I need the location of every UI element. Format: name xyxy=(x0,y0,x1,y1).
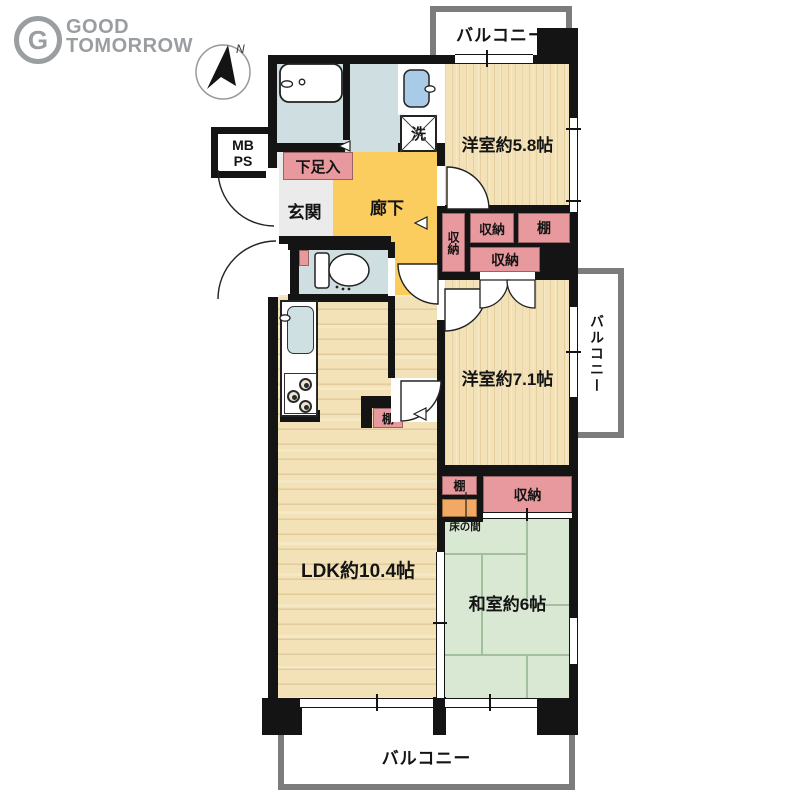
brand-logo-icon: G xyxy=(14,16,62,64)
japanese-room-label: 和室約6帖 xyxy=(443,588,572,616)
toilet-floor xyxy=(299,250,388,294)
compass-needle-icon xyxy=(207,45,236,89)
shoe-cabinet: 下足入 xyxy=(283,152,353,180)
closet-door-opening xyxy=(480,272,535,280)
door-opening xyxy=(388,258,395,296)
window-tick xyxy=(376,694,378,711)
wall xyxy=(535,272,578,280)
western-room-58-label: 洋室約5.8帖 xyxy=(445,128,570,158)
tatami-line xyxy=(443,553,527,555)
closet-58-lower: 収納 xyxy=(470,247,540,272)
wall xyxy=(211,127,268,134)
window-tick xyxy=(433,622,447,624)
wall xyxy=(268,55,277,168)
western-room-71-label: 洋室約7.1帖 xyxy=(445,362,570,392)
meter-pipe-space-label: MB PS xyxy=(218,134,268,171)
window-tick xyxy=(489,694,491,711)
laundry-label: 洗 xyxy=(400,115,437,152)
toilet-shelf xyxy=(299,250,309,266)
balcony-right: バルコニー xyxy=(578,268,624,438)
compass-circle xyxy=(196,45,250,99)
stove-burner-icon xyxy=(299,400,312,413)
tokonoma-label: 床の間 xyxy=(438,519,492,533)
window xyxy=(455,54,533,64)
balcony-bottom-label: バルコニー xyxy=(284,739,569,773)
shelf-58: 棚 xyxy=(518,213,570,243)
tokonoma-box xyxy=(442,499,477,517)
balcony-bottom: バルコニー xyxy=(278,735,575,790)
wall xyxy=(437,320,445,420)
floorplan-canvas: G GOOD TOMORROW N バルコニー バルコニー バルコニー xyxy=(0,0,800,800)
wall xyxy=(540,247,578,272)
shelf-washitsu: 棚 xyxy=(442,476,477,495)
compass: N xyxy=(190,36,260,106)
wall xyxy=(343,60,350,140)
wall xyxy=(437,272,480,280)
compass-north-label: N xyxy=(236,42,245,56)
wall xyxy=(268,55,455,64)
brand-logo-letter: G xyxy=(28,25,48,56)
hallway-label: 廊下 xyxy=(337,192,437,220)
wall xyxy=(437,143,445,166)
tatami-line xyxy=(526,655,528,700)
wall xyxy=(388,296,395,378)
wall xyxy=(262,698,302,735)
closet-58-left: 収納 xyxy=(470,213,514,243)
wall xyxy=(388,250,395,258)
wall xyxy=(268,297,278,703)
window-tick xyxy=(526,508,528,521)
wall xyxy=(437,205,578,213)
window-tick xyxy=(486,50,488,67)
door-opening xyxy=(391,378,437,422)
stove-burner-icon xyxy=(287,390,300,403)
door-opening xyxy=(437,166,445,206)
window xyxy=(300,698,433,708)
wall xyxy=(211,171,268,178)
window xyxy=(569,118,578,212)
entrance-door-opening xyxy=(266,168,279,297)
sliding-partition xyxy=(436,552,445,698)
wall xyxy=(290,250,299,295)
door-opening xyxy=(437,280,445,320)
washstand-area xyxy=(398,60,437,115)
kitchen-sink xyxy=(287,306,314,354)
brand-line2: TOMORROW xyxy=(66,37,193,56)
window-tick xyxy=(566,200,581,202)
window xyxy=(569,618,578,664)
balcony-right-label: バルコニー xyxy=(584,284,610,424)
window xyxy=(445,698,537,708)
pipe-space-label: PS xyxy=(234,153,253,169)
entrance-label: 玄関 xyxy=(276,196,333,224)
wall xyxy=(437,465,578,476)
meter-box-label: MB xyxy=(232,137,254,153)
brand-wordmark: GOOD TOMORROW xyxy=(66,18,193,56)
ldk-label: LDK約10.4帖 xyxy=(279,554,437,584)
window-tick xyxy=(566,351,581,353)
closet-hall-vertical: 収納 xyxy=(442,213,465,272)
wall xyxy=(277,143,345,152)
stove-burner-icon xyxy=(299,378,312,391)
wall xyxy=(288,242,395,250)
tatami-line xyxy=(443,654,572,656)
